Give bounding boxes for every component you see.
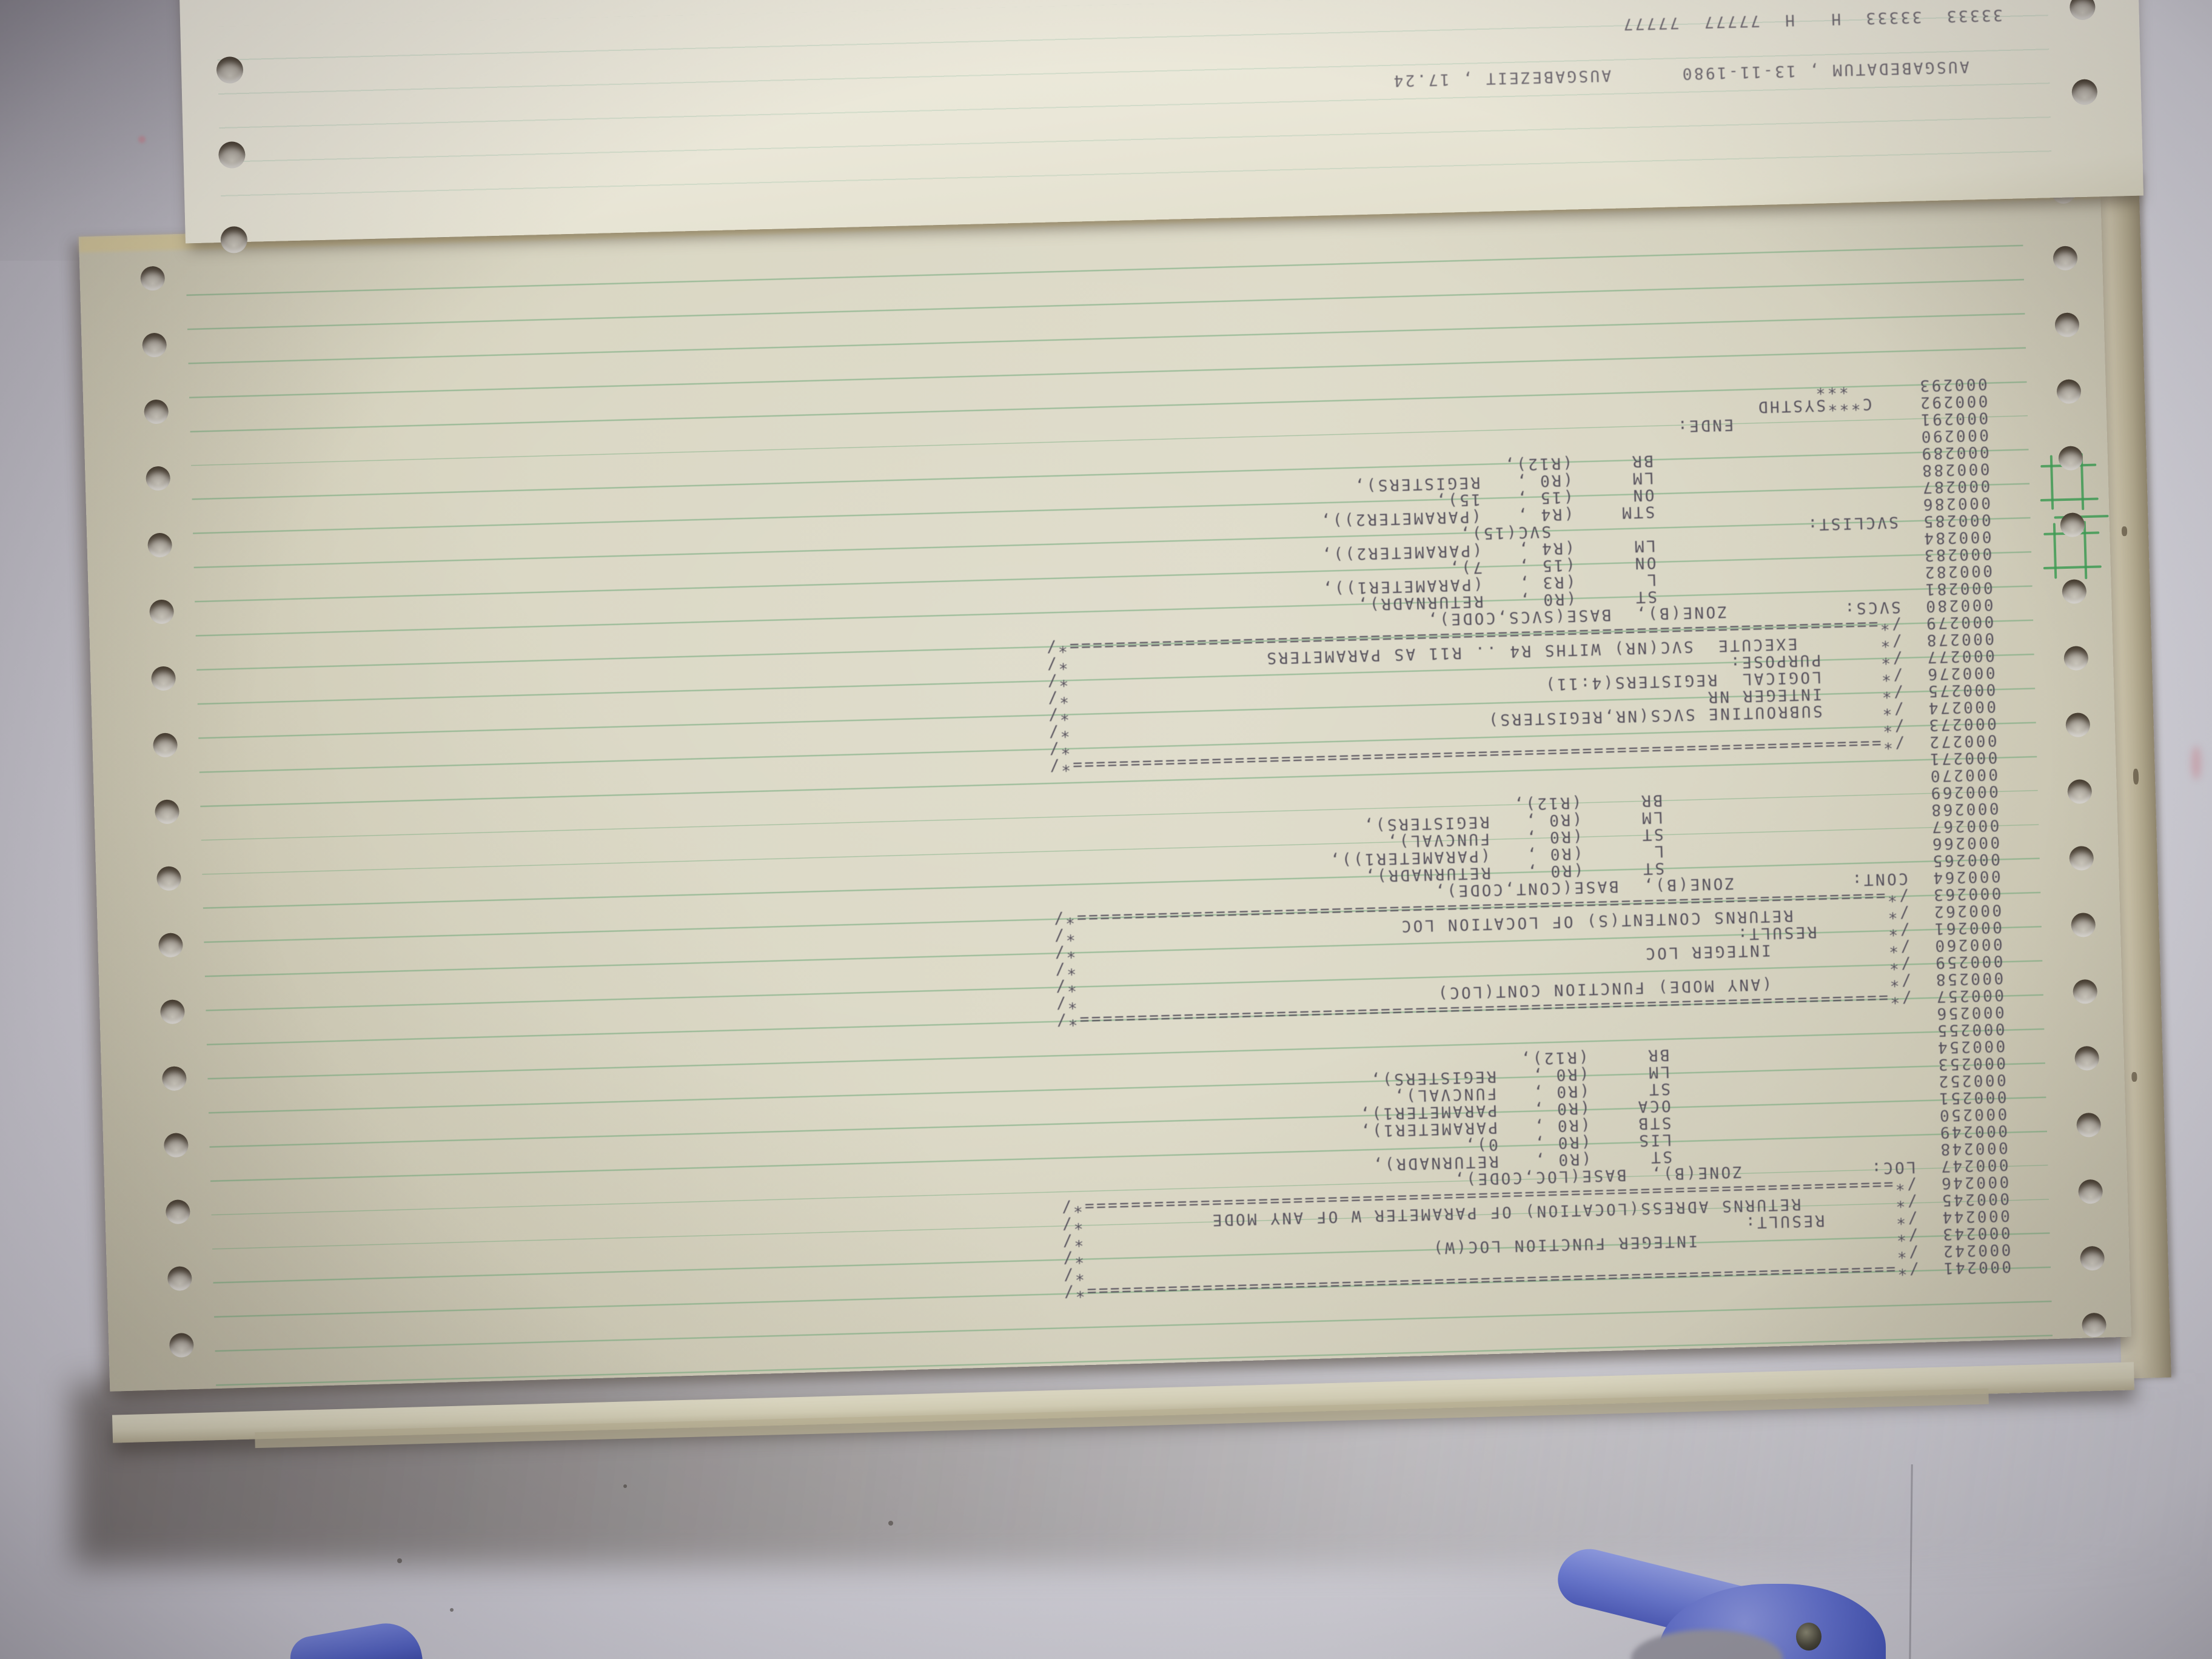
- sprocket-hole: [2070, 0, 2096, 20]
- sprocket-hole: [2071, 79, 2097, 105]
- pink-smudge: [138, 136, 146, 143]
- dust-speck: [623, 1484, 627, 1488]
- paper-edge-speck: [2131, 1072, 2137, 1082]
- desk-shadow-top-left: [0, 0, 200, 261]
- dust-speck: [888, 1521, 893, 1526]
- program-listing-text-upside-down: 000241 /*===============================…: [1033, 374, 2012, 1300]
- photo-of-printout: AUSGABEDATUM , 13-11-1980 AUSGABEZEIT , …: [0, 0, 2212, 1659]
- dust-speck: [450, 1608, 454, 1612]
- clamp-rivet: [1796, 1623, 1822, 1651]
- page-footer-text-upside-down: AUSGABEDATUM , 13-11-1980 AUSGABEZEIT , …: [1384, 4, 2005, 89]
- blue-object-bottom-edge: [287, 1618, 423, 1659]
- listing-page-sheet: 000241 /*===============================…: [79, 182, 2131, 1392]
- red-smudge: [2191, 746, 2201, 780]
- paper-edge-speck: [2133, 769, 2139, 785]
- dust-speck: [397, 1558, 402, 1563]
- paper-edge-speck: [2122, 526, 2127, 536]
